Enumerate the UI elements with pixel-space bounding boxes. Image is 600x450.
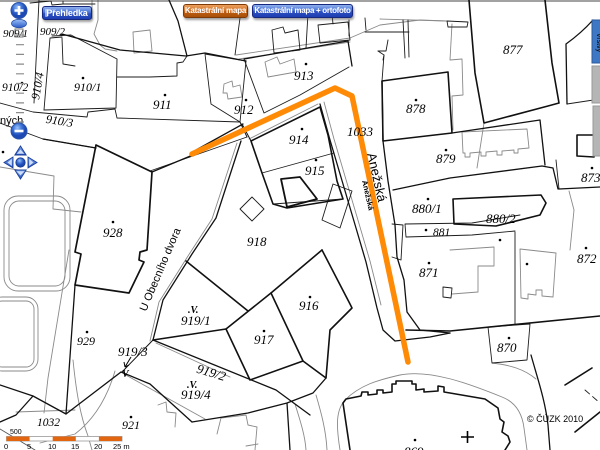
svg-text:878: 878 xyxy=(406,101,426,116)
svg-text:500: 500 xyxy=(10,429,22,436)
svg-text:15: 15 xyxy=(71,442,79,450)
svg-text:869: 869 xyxy=(404,444,424,450)
svg-text:910/2: 910/2 xyxy=(2,82,28,94)
svg-text:910/4: 910/4 xyxy=(28,71,47,100)
svg-text:872: 872 xyxy=(577,251,597,266)
svg-text:U Obecního dvora: U Obecního dvora xyxy=(138,225,184,313)
svg-text:917: 917 xyxy=(254,332,274,347)
svg-text:1032: 1032 xyxy=(37,417,60,429)
svg-text:© ČÚZK 2010: © ČÚZK 2010 xyxy=(527,414,583,424)
svg-text:.V.: .V. xyxy=(187,380,198,391)
svg-text:921: 921 xyxy=(122,418,140,432)
svg-text:913: 913 xyxy=(294,68,314,83)
svg-text:928: 928 xyxy=(103,225,123,240)
svg-text:909/1: 909/1 xyxy=(3,28,28,40)
svg-text:Vrstvy: Vrstvy xyxy=(595,33,600,53)
svg-text:873: 873 xyxy=(581,170,600,185)
svg-text:5: 5 xyxy=(27,442,31,450)
svg-text:871: 871 xyxy=(419,265,439,280)
svg-text:1033: 1033 xyxy=(347,124,374,139)
svg-text:909/2: 909/2 xyxy=(40,26,66,38)
svg-text:918: 918 xyxy=(247,234,267,249)
svg-text:0: 0 xyxy=(4,442,8,450)
svg-text:10: 10 xyxy=(48,442,56,450)
svg-text:919/2: 919/2 xyxy=(195,361,228,384)
svg-text:870: 870 xyxy=(497,340,517,355)
svg-text:20: 20 xyxy=(94,442,102,450)
svg-text:879: 879 xyxy=(436,151,456,166)
svg-text:916: 916 xyxy=(299,298,319,313)
svg-text:914: 914 xyxy=(289,132,309,147)
svg-text:877: 877 xyxy=(503,42,523,57)
svg-text:V: V xyxy=(122,369,130,380)
svg-text:910/1: 910/1 xyxy=(74,80,101,94)
svg-text:912: 912 xyxy=(234,102,254,117)
svg-text:911: 911 xyxy=(153,97,172,112)
svg-text:929: 929 xyxy=(77,334,95,348)
svg-text:25 m: 25 m xyxy=(113,442,130,450)
svg-text:915: 915 xyxy=(305,163,325,178)
svg-text:910/3: 910/3 xyxy=(45,112,74,130)
svg-text:.V.: .V. xyxy=(188,305,199,316)
svg-text:880/2: 880/2 xyxy=(486,211,516,226)
svg-text:880/1: 880/1 xyxy=(412,201,442,216)
svg-text:919/3: 919/3 xyxy=(118,344,148,359)
svg-text:881: 881 xyxy=(433,227,450,239)
